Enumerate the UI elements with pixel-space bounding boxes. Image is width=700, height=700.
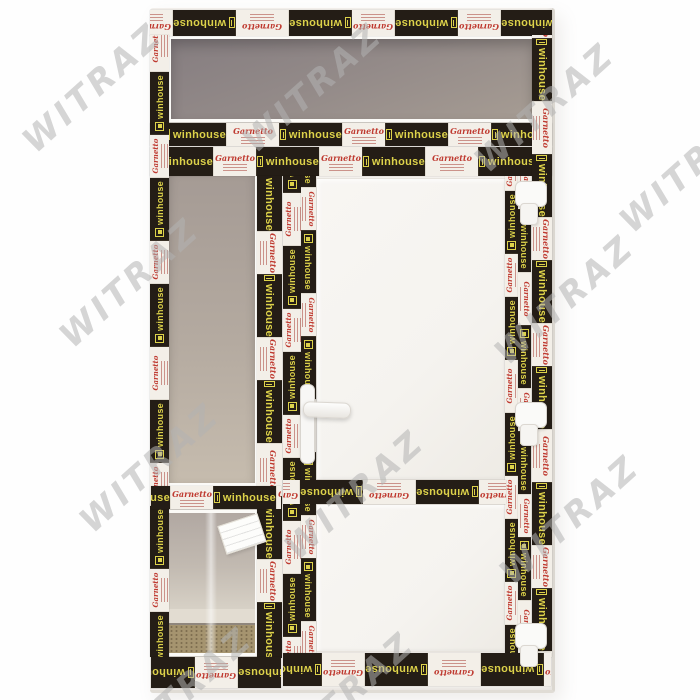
garnetto-tape-label: Garnetto: [242, 22, 282, 32]
winhouse-tape-label: winhouse: [507, 522, 517, 566]
tape-strip-lower-top-rail: winhouseGarnettowinhouseGarnettowinhouse…: [150, 147, 552, 176]
winhouse-square-logo-icon: [155, 556, 164, 565]
tape-fineprint-lines: [301, 631, 306, 654]
winhouse-tape-label: winhouse: [395, 129, 448, 141]
garnetto-tape-segment: Garnetto: [283, 480, 300, 504]
garnetto-tape-label: Garnetto: [323, 669, 363, 679]
garnetto-tape-label: Garnetto: [321, 153, 361, 163]
winhouse-square-logo-icon: [304, 340, 313, 349]
winhouse-tape-segment: winhouse: [505, 297, 518, 360]
winhouse-tape-label: winhouse: [264, 612, 276, 658]
tape-strip-mullion: winhouseGarnettowinhouseGarnettowinhouse…: [257, 176, 282, 658]
garnetto-tape-label: Garnetto: [522, 282, 531, 317]
winhouse-square-logo-icon: [155, 122, 164, 131]
garnetto-tape-segment: Garnetto: [276, 486, 281, 509]
door-hinge-bottom: [515, 623, 551, 669]
winhouse-square-logo-icon: [520, 541, 529, 550]
winhouse-square-logo-icon: [155, 228, 164, 237]
garnetto-tape-label: Garnetto: [151, 245, 160, 280]
winhouse-square-logo-icon: [304, 234, 313, 243]
tape-strip-left-bottom-rail: winhouseGarnettowinhouse: [151, 657, 281, 688]
winhouse-tape-label: winhouse: [151, 667, 185, 679]
winhouse-tape-segment: winhouse: [150, 400, 169, 463]
garnetto-tape-segment: Garnetto: [505, 582, 518, 625]
winhouse-tape-segment: winhouse: [289, 10, 352, 36]
tape-fineprint-lines: [261, 458, 268, 482]
door-hinge-middle: [515, 402, 551, 448]
garnetto-tape-label: Garnetto: [284, 419, 293, 454]
winhouse-tape-label: winhouse: [395, 17, 448, 29]
garnetto-tape-label: Garnetto: [150, 22, 171, 32]
product-photo: winhouseGarnettowinhouseGarnettowinhouse…: [0, 0, 700, 700]
winhouse-tape-label: winhouse: [300, 486, 353, 498]
tape-fineprint-lines: [161, 35, 168, 57]
winhouse-tape-label: winhouse: [287, 355, 297, 399]
garnetto-tape-label: Garnetto: [196, 672, 236, 682]
tape-strip-top-frame: winhouseGarnettowinhouseGarnettowinhouse…: [150, 10, 552, 36]
garnetto-tape-segment: Garnetto: [425, 147, 478, 176]
garnetto-tape-label: Garnetto: [278, 489, 281, 499]
winhouse-tape-label: winhouse: [520, 447, 530, 491]
garnetto-tape-label: Garnetto: [151, 356, 160, 391]
door-handle-lever: [303, 401, 352, 419]
garnetto-tape-label: Garnetto: [541, 547, 551, 587]
winhouse-tape-segment: winhouse: [283, 352, 301, 415]
garnetto-tape-label: Garnetto: [480, 491, 506, 501]
garnetto-tape-segment: Garnetto: [301, 293, 316, 336]
tape-fineprint-lines: [533, 555, 540, 579]
tape-fineprint-lines: [458, 137, 482, 144]
garnetto-tape-segment: Garnetto: [150, 135, 169, 178]
garnetto-tape-label: Garnetto: [284, 313, 293, 348]
garnetto-tape-segment: Garnetto: [322, 653, 365, 686]
winhouse-tape-label: winhouse: [266, 156, 319, 168]
garnetto-tape-label: Garnetto: [283, 491, 298, 501]
garnetto-tape-segment: Garnetto: [319, 147, 362, 176]
garnetto-tape-label: Garnetto: [284, 530, 293, 565]
garnetto-tape-segment: Garnetto: [532, 101, 552, 154]
winhouse-tape-label: winhouse: [238, 667, 281, 679]
tape-fineprint-lines: [518, 287, 521, 311]
winhouse-tape-segment: winhouse: [257, 274, 282, 337]
tape-fineprint-lines: [301, 303, 306, 327]
garnetto-tape-label: Garnetto: [369, 491, 409, 501]
winhouse-tape-label: winhouse: [304, 176, 314, 184]
door-hinge-top: [515, 181, 551, 227]
winhouse-tape-label: winhouse: [173, 17, 226, 29]
tape-fineprint-lines: [180, 500, 204, 507]
garnetto-tape-label: Garnetto: [505, 176, 514, 186]
winhouse-tape-segment: winhouse: [150, 284, 169, 347]
winhouse-tape-label: winhouse: [287, 577, 297, 621]
winhouse-square-logo-icon: [280, 129, 286, 140]
winhouse-square-logo-icon: [507, 241, 516, 250]
winhouse-tape-segment: winhouse: [257, 602, 282, 658]
winhouse-square-logo-icon: [507, 569, 516, 578]
transom-window-glass: [168, 36, 536, 122]
side-window-frosted-glass: [166, 164, 258, 486]
winhouse-square-logo-icon: [264, 275, 275, 281]
garnetto-tape-label: Garnetto: [151, 35, 160, 62]
tape-fineprint-lines: [161, 144, 168, 168]
tape-fineprint-lines: [518, 504, 521, 528]
garnetto-tape-label: Garnetto: [269, 450, 279, 490]
tape-fineprint-lines: [467, 14, 491, 21]
tape-fineprint-lines: [161, 250, 168, 274]
winhouse-tape-segment: winhouse: [283, 176, 301, 193]
garnetto-tape-label: Garnetto: [284, 202, 293, 237]
winhouse-tape-label: winhouse: [287, 176, 297, 177]
winhouse-tape-segment: winhouse: [151, 657, 195, 688]
winhouse-square-logo-icon: [288, 296, 297, 305]
garnetto-tape-label: Garnetto: [505, 369, 514, 404]
garnetto-tape-segment: Garnetto: [257, 559, 282, 602]
garnetto-tape-label: Garnetto: [269, 561, 279, 601]
winhouse-square-logo-icon: [288, 624, 297, 633]
garnetto-tape-segment: Garnetto: [150, 10, 173, 36]
winhouse-tape-segment: winhouse: [518, 537, 531, 600]
winhouse-tape-label: winhouse: [289, 17, 342, 29]
tape-fineprint-lines: [294, 535, 301, 559]
winhouse-square-logo-icon: [472, 487, 478, 498]
winhouse-tape-segment: winhouse: [300, 480, 363, 504]
winhouse-tape-segment: winhouse: [532, 482, 552, 545]
winhouse-tape-label: winhouse: [536, 492, 548, 545]
garnetto-tape-label: Garnetto: [269, 339, 279, 379]
garnetto-tape-segment: Garnetto: [283, 415, 301, 458]
winhouse-tape-label: winhouse: [151, 492, 170, 504]
garnetto-tape-segment: Garnetto: [301, 621, 316, 654]
hinge-knuckle: [520, 203, 538, 225]
winhouse-square-logo-icon: [492, 129, 498, 140]
winhouse-tape-segment: winhouse: [385, 123, 448, 146]
winhouse-square-logo-icon: [537, 39, 548, 45]
tape-fineprint-lines: [329, 164, 353, 171]
garnetto-tape-segment: Garnetto: [532, 323, 552, 366]
garnetto-tape-label: Garnetto: [541, 325, 551, 365]
garnetto-tape-segment: Garnetto: [342, 123, 385, 146]
winhouse-tape-label: winhouse: [155, 181, 165, 225]
glass-reflection: [205, 513, 217, 653]
garnetto-tape-segment: Garnetto: [518, 272, 531, 325]
tape-strip-right-frame: GarnettowinhouseGarnettowinhouseGarnetto…: [532, 35, 552, 657]
tape-strip-left-frame: winhouseGarnettowinhouseGarnettowinhouse…: [150, 35, 169, 657]
garnetto-tape-segment: Garnetto: [301, 515, 316, 558]
winhouse-tape-label: winhouse: [304, 574, 314, 618]
garnetto-tape-segment: Garnetto: [150, 347, 169, 400]
tape-fineprint-lines: [294, 207, 301, 231]
winhouse-square-logo-icon: [507, 463, 516, 472]
tape-strip-left-mid-rail: winhouseGarnettowinhouseGarnetto: [151, 486, 281, 509]
garnetto-tape-segment: Garnetto: [283, 521, 301, 574]
garnetto-tape-segment: Garnetto: [518, 494, 531, 537]
winhouse-tape-label: winhouse: [501, 17, 552, 29]
garnetto-tape-segment: Garnetto: [195, 657, 238, 688]
tape-fineprint-lines: [533, 116, 540, 140]
winhouse-tape-label: winhouse: [264, 506, 276, 559]
winhouse-tape-segment: winhouse: [150, 72, 169, 135]
garnetto-tape-label: Garnetto: [505, 258, 514, 293]
tape-fineprint-lines: [294, 318, 301, 342]
winhouse-tape-label: winhouse: [536, 48, 548, 101]
winhouse-square-logo-icon: [537, 589, 548, 595]
garnetto-tape-segment: Garnetto: [505, 254, 518, 297]
winhouse-tape-label: winhouse: [155, 509, 165, 553]
door-upper-panel: [316, 178, 506, 480]
winhouse-square-logo-icon: [257, 156, 263, 167]
garnetto-tape-label: Garnetto: [307, 298, 316, 333]
hinge-knuckle: [520, 424, 538, 446]
garnetto-tape-label: Garnetto: [432, 153, 472, 163]
garnetto-tape-label: Garnetto: [353, 22, 393, 32]
winhouse-square-logo-icon: [451, 18, 457, 29]
winhouse-tape-label: winhouse: [264, 390, 276, 443]
winhouse-square-logo-icon: [363, 156, 369, 167]
winhouse-tape-segment: winhouse: [173, 10, 236, 36]
winhouse-tape-segment: winhouse: [301, 230, 316, 293]
garnetto-tape-label: Garnetto: [172, 489, 212, 499]
winhouse-tape-segment: winhouse: [257, 380, 282, 443]
garnetto-tape-segment: Garnetto: [532, 545, 552, 588]
winhouse-tape-segment: winhouse: [279, 123, 342, 146]
winhouse-square-logo-icon: [479, 156, 485, 167]
winhouse-tape-segment: winhouse: [151, 486, 170, 509]
garnetto-tape-label: Garnetto: [505, 586, 514, 621]
winhouse-tape-segment: winhouse: [257, 176, 282, 231]
garnetto-tape-label: Garnetto: [541, 35, 551, 37]
winhouse-tape-segment: winhouse: [283, 246, 301, 309]
tape-strip-transom-bottom: GarnettowinhouseGarnettowinhouseGarnetto…: [150, 123, 552, 146]
garnetto-tape-segment: Garnetto: [505, 476, 518, 519]
garnetto-tape-segment: Garnetto: [213, 147, 256, 176]
winhouse-tape-label: winhouse: [289, 129, 342, 141]
garnetto-tape-label: Garnetto: [307, 192, 316, 227]
winhouse-tape-segment: winhouse: [362, 147, 425, 176]
winhouse-square-logo-icon: [537, 483, 548, 489]
winhouse-tape-label: winhouse: [264, 178, 276, 231]
garnetto-tape-label: Garnetto: [459, 22, 499, 32]
witraz-watermark: WITRAZ: [612, 95, 700, 241]
garnetto-tape-segment: Garnetto: [236, 10, 289, 36]
door-lower-panel: [316, 504, 506, 652]
winhouse-square-logo-icon: [264, 603, 275, 609]
winhouse-square-logo-icon: [304, 562, 313, 571]
witraz-watermark: WITRAZ: [15, 15, 171, 161]
tape-fineprint-lines: [301, 197, 306, 221]
tape-fineprint-lines: [204, 664, 228, 671]
tape-fineprint-lines: [241, 137, 265, 144]
tape-fineprint-lines: [442, 661, 466, 668]
garnetto-tape-segment: Garnetto: [226, 123, 279, 146]
tape-fineprint-lines: [283, 483, 290, 490]
tape-fineprint-lines: [331, 661, 355, 668]
garnetto-tape-segment: Garnetto: [301, 187, 316, 230]
winhouse-tape-segment: winhouse: [283, 574, 301, 637]
tape-fineprint-lines: [150, 14, 163, 21]
garnetto-tape-segment: Garnetto: [257, 231, 282, 274]
garnetto-tape-segment: Garnetto: [170, 486, 213, 509]
winhouse-tape-segment: winhouse: [283, 653, 322, 686]
hinge-knuckle: [520, 645, 538, 667]
winhouse-square-logo-icon: [214, 492, 220, 503]
garnetto-tape-segment: Garnetto: [150, 35, 169, 72]
winhouse-tape-label: winhouse: [304, 246, 314, 290]
winhouse-tape-label: winhouse: [155, 75, 165, 119]
winhouse-tape-label: winhouse: [155, 287, 165, 331]
winhouse-square-logo-icon: [288, 402, 297, 411]
garnetto-tape-segment: Garnetto: [352, 10, 395, 36]
winhouse-tape-label: winhouse: [155, 615, 165, 657]
garnetto-tape-segment: Garnetto: [283, 193, 301, 246]
tape-fineprint-lines: [161, 578, 168, 602]
winhouse-tape-label: winhouse: [536, 270, 548, 323]
garnetto-tape-segment: Garnetto: [448, 123, 491, 146]
garnetto-tape-label: Garnetto: [545, 669, 551, 679]
winhouse-square-logo-icon: [229, 18, 235, 29]
winhouse-tape-label: winhouse: [372, 156, 425, 168]
winhouse-square-logo-icon: [315, 664, 321, 675]
tape-fineprint-lines: [223, 164, 247, 171]
tape-fineprint-lines: [261, 241, 268, 265]
winhouse-tape-segment: winhouse: [150, 178, 169, 241]
winhouse-tape-label: winhouse: [520, 341, 530, 385]
tape-fineprint-lines: [261, 569, 268, 593]
garnetto-tape-segment: Garnetto: [283, 309, 301, 352]
tape-fineprint-lines: [352, 137, 376, 144]
winhouse-tape-segment: winhouse: [532, 260, 552, 323]
garnetto-tape-segment: Garnetto: [150, 569, 169, 612]
winhouse-tape-label: winhouse: [264, 284, 276, 337]
garnetto-tape-segment: Garnetto: [363, 480, 416, 504]
garnetto-tape-label: Garnetto: [215, 153, 255, 163]
garnetto-tape-segment: Garnetto: [150, 241, 169, 284]
winhouse-tape-label: winhouse: [520, 225, 530, 269]
winhouse-tape-segment: winhouse: [518, 325, 531, 388]
garnetto-tape-label: Garnetto: [151, 573, 160, 608]
winhouse-tape-segment: winhouse: [505, 519, 518, 582]
garnetto-tape-label: Garnetto: [284, 641, 293, 654]
winhouse-tape-label: winhouse: [365, 664, 418, 676]
winhouse-square-logo-icon: [537, 367, 548, 373]
tape-fineprint-lines: [533, 227, 540, 251]
winhouse-square-logo-icon: [188, 667, 194, 678]
garnetto-tape-label: Garnetto: [434, 669, 474, 679]
tape-fineprint-lines: [301, 525, 306, 549]
winhouse-square-logo-icon: [537, 155, 548, 161]
winhouse-square-logo-icon: [421, 664, 427, 675]
garnetto-tape-segment: Garnetto: [283, 637, 301, 654]
door-handle-plate: [300, 384, 315, 464]
winhouse-square-logo-icon: [537, 261, 548, 267]
winhouse-square-logo-icon: [507, 347, 516, 356]
winhouse-tape-segment: winhouse: [213, 486, 276, 509]
garnetto-tape-label: Garnetto: [344, 126, 384, 136]
winhouse-square-logo-icon: [520, 329, 529, 338]
winhouse-square-logo-icon: [356, 487, 362, 498]
winhouse-tape-label: winhouse: [223, 492, 276, 504]
garnetto-tape-label: Garnetto: [307, 626, 316, 654]
winhouse-tape-segment: winhouse: [365, 653, 428, 686]
garnetto-tape-label: Garnetto: [505, 480, 514, 515]
winhouse-tape-label: winhouse: [287, 249, 297, 293]
tape-fineprint-lines: [250, 14, 274, 21]
winhouse-tape-segment: winhouse: [150, 506, 169, 569]
winhouse-tape-segment: winhouse: [501, 10, 552, 36]
winhouse-tape-label: winhouse: [520, 553, 530, 597]
winhouse-tape-segment: winhouse: [416, 480, 479, 504]
winhouse-tape-segment: winhouse: [238, 657, 281, 688]
garnetto-tape-label: Garnetto: [522, 499, 531, 534]
winhouse-tape-segment: winhouse: [395, 10, 458, 36]
garnetto-tape-segment: Garnetto: [479, 480, 506, 504]
winhouse-square-logo-icon: [386, 129, 392, 140]
winhouse-tape-segment: winhouse: [532, 38, 552, 101]
winhouse-tape-segment: winhouse: [256, 147, 319, 176]
winhouse-tape-label: winhouse: [416, 486, 469, 498]
tape-strip-door-bottom-rail: GarnettowinhouseGarnettowinhouseGarnetto…: [283, 653, 551, 686]
tape-fineprint-lines: [361, 14, 385, 21]
winhouse-tape-label: winhouse: [173, 129, 226, 141]
winhouse-tape-segment: winhouse: [301, 176, 316, 187]
winhouse-square-logo-icon: [264, 381, 275, 387]
garnetto-tape-segment: Garnetto: [428, 653, 481, 686]
winhouse-tape-segment: winhouse: [301, 558, 316, 621]
winhouse-square-logo-icon: [288, 508, 297, 517]
garnetto-tape-segment: Garnetto: [458, 10, 501, 36]
winhouse-square-logo-icon: [288, 180, 297, 189]
tape-strip-door-mid-rail: GarnettowinhouseGarnettowinhouseGarnetto: [283, 480, 506, 504]
tape-fineprint-lines: [261, 347, 268, 371]
tape-fineprint-lines: [440, 164, 464, 171]
winhouse-square-logo-icon: [155, 334, 164, 343]
tape-fineprint-lines: [377, 483, 401, 490]
winhouse-square-logo-icon: [345, 18, 351, 29]
tape-strip-door-stile-a: GarnettowinhouseGarnettowinhouseGarnetto…: [283, 176, 301, 654]
winhouse-tape-label: winhouse: [283, 664, 312, 676]
tape-fineprint-lines: [161, 361, 168, 385]
winhouse-tape-segment: winhouse: [163, 123, 226, 146]
winhouse-tape-label: winhouse: [507, 300, 517, 344]
winhouse-tape-label: winhouse: [155, 403, 165, 447]
garnetto-tape-label: Garnetto: [151, 139, 160, 174]
garnetto-tape-segment: Garnetto: [257, 337, 282, 380]
winhouse-square-logo-icon: [155, 450, 164, 459]
garnetto-tape-label: Garnetto: [541, 108, 551, 148]
garnetto-tape-label: Garnetto: [307, 520, 316, 555]
tape-fineprint-lines: [533, 333, 540, 357]
garnetto-tape-label: Garnetto: [269, 233, 279, 273]
garnetto-tape-label: Garnetto: [450, 126, 490, 136]
tape-fineprint-lines: [488, 483, 506, 490]
winhouse-tape-segment: winhouse: [150, 612, 169, 657]
garnetto-tape-label: Garnetto: [233, 126, 273, 136]
